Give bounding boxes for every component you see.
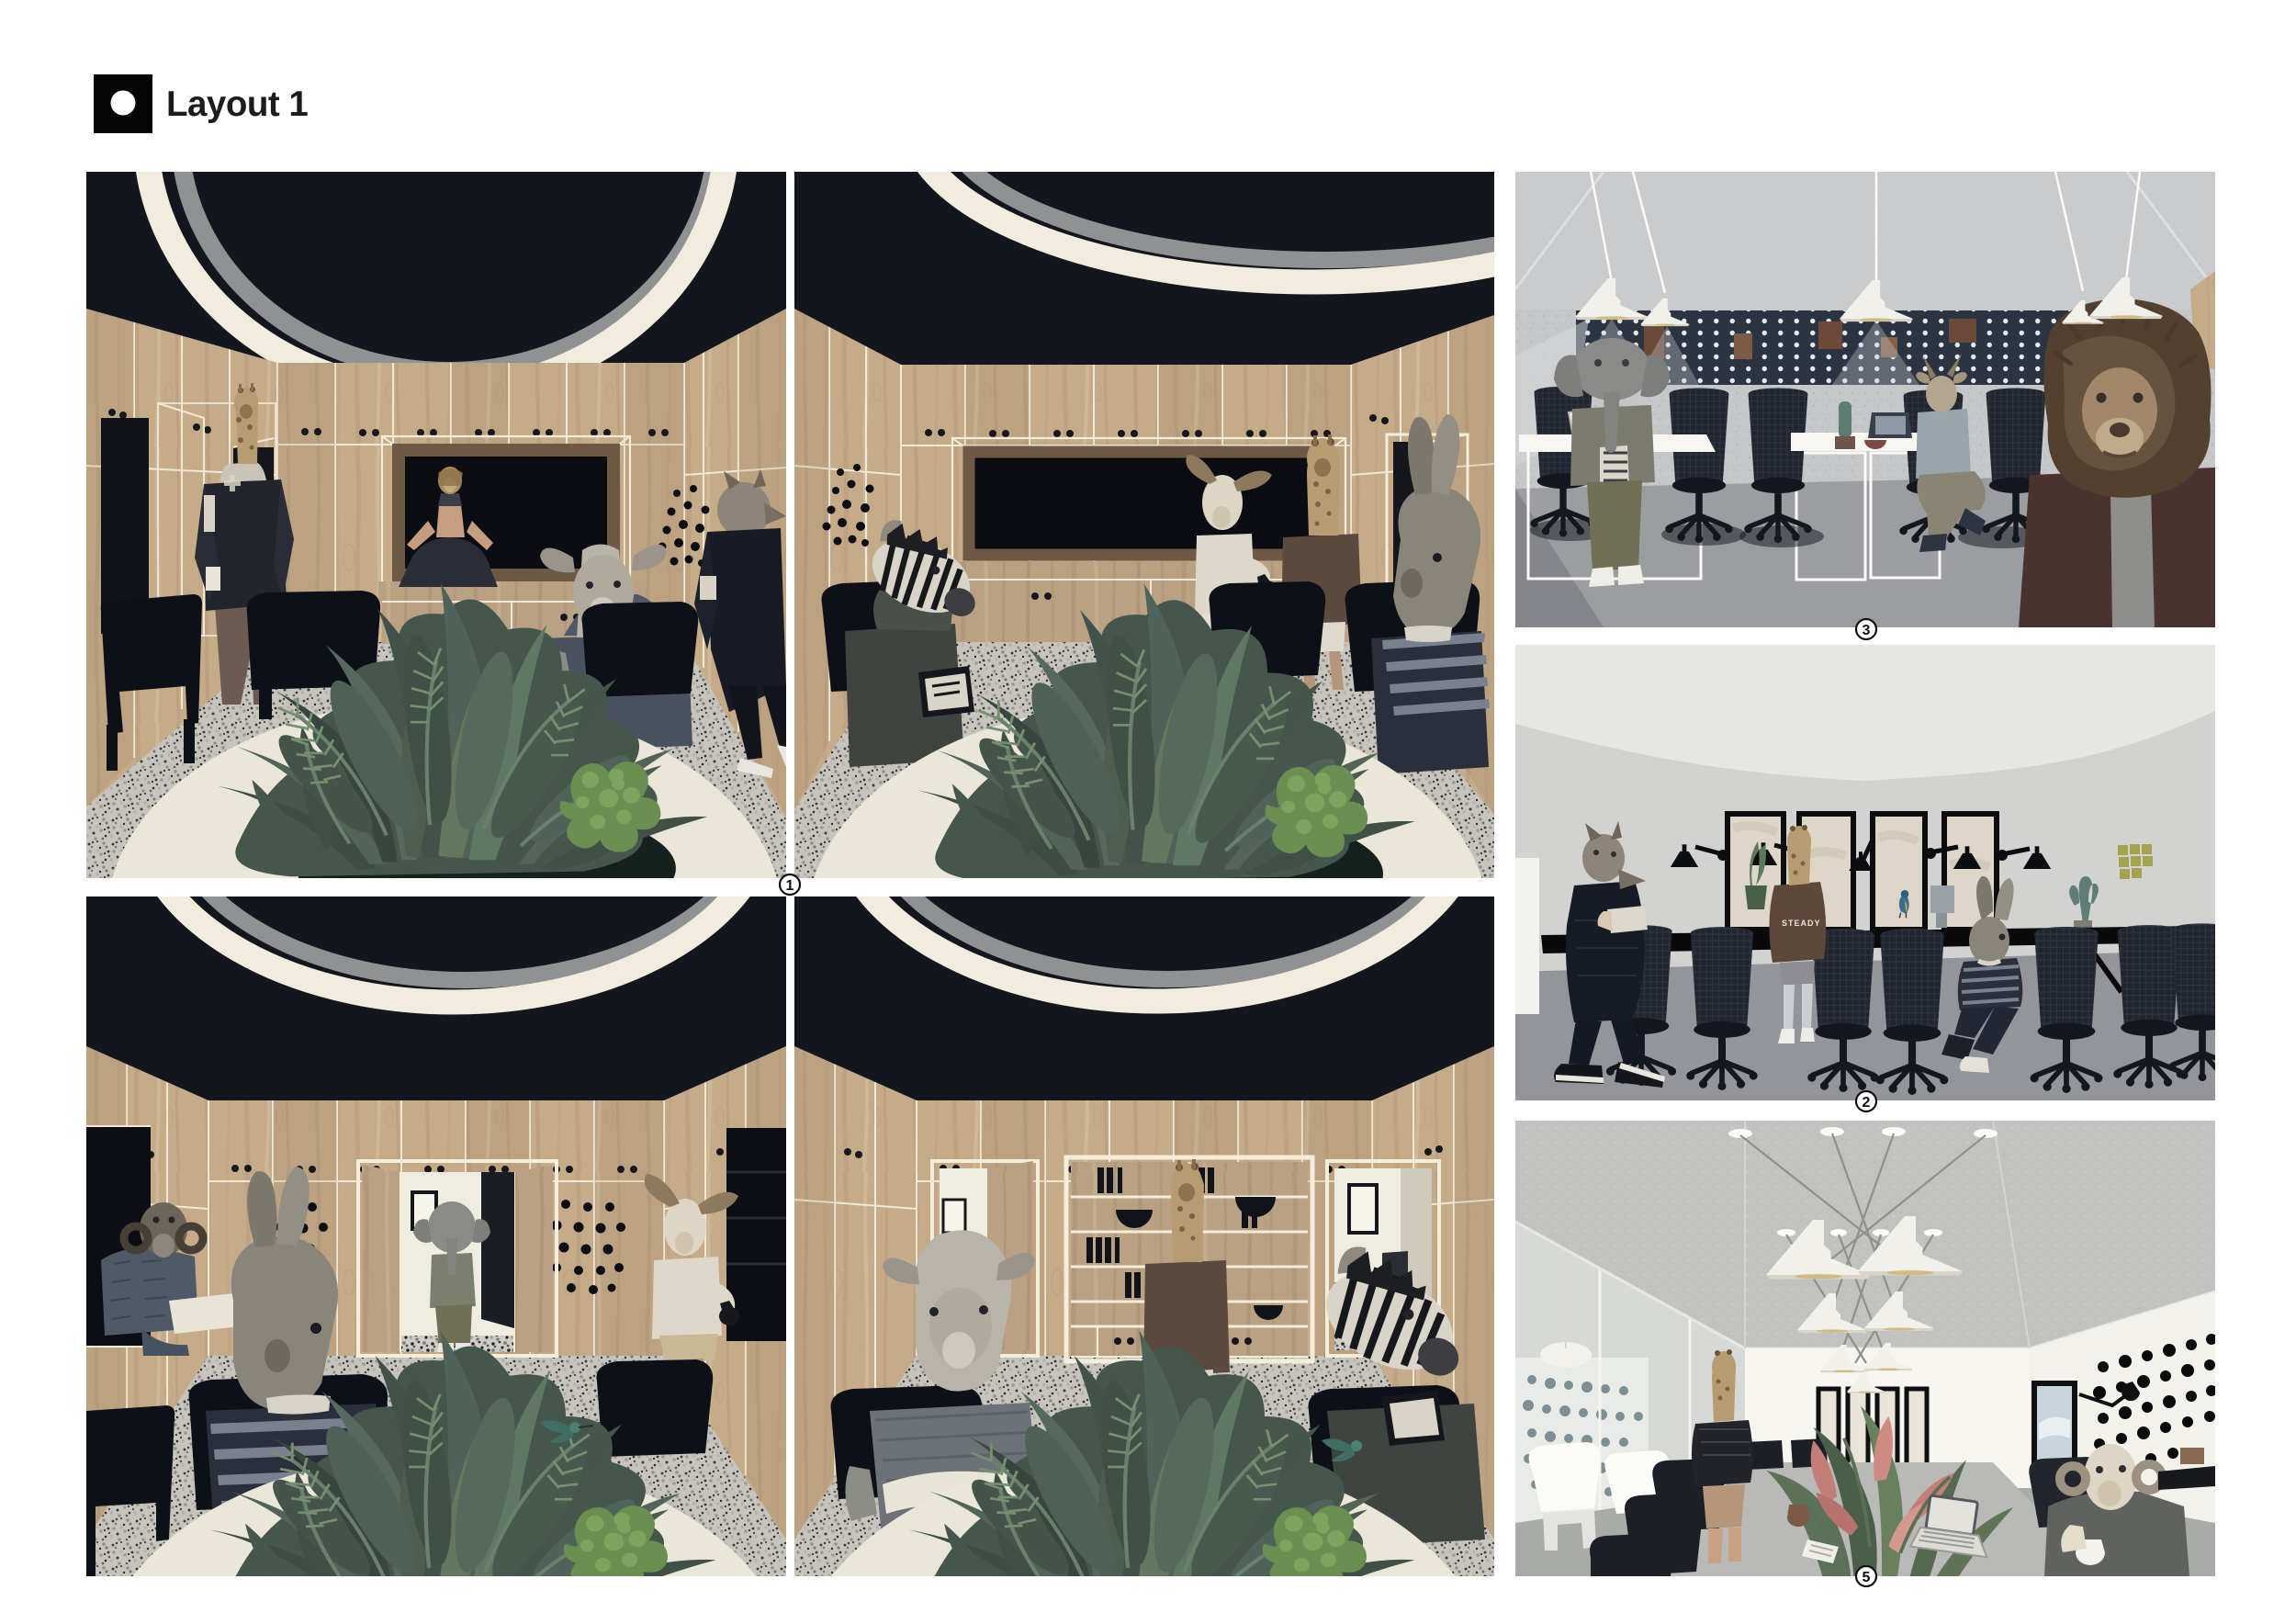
svg-text:5: 5 <box>1863 1570 1871 1585</box>
svg-text:STEADY: STEADY <box>1782 919 1821 928</box>
svg-text:Layout 1: Layout 1 <box>166 85 308 124</box>
svg-text:1: 1 <box>786 878 794 894</box>
svg-text:3: 3 <box>1863 623 1871 638</box>
svg-text:2: 2 <box>1863 1095 1871 1111</box>
